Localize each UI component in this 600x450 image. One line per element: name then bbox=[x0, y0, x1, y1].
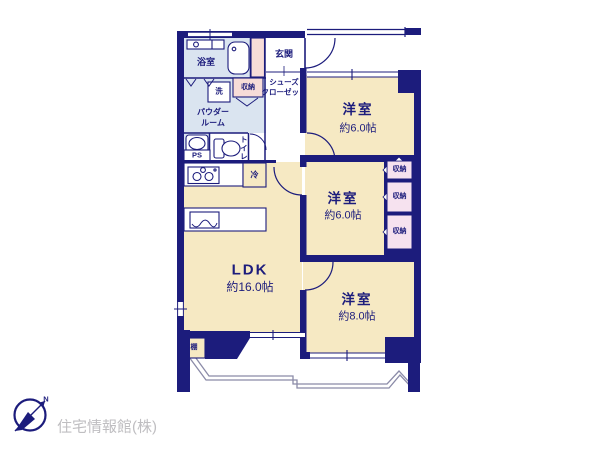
closet-2-label: 収納 bbox=[393, 193, 407, 201]
island-sink bbox=[184, 208, 266, 231]
entrance-side-cabinet bbox=[251, 38, 265, 77]
toilet-fixture bbox=[214, 139, 240, 158]
bedroom-bottom-label: 洋室 bbox=[342, 292, 373, 308]
room-bedroom-middle-fill bbox=[305, 162, 385, 255]
floorplan-drawing bbox=[0, 0, 600, 450]
bedroom-middle-size-label: 約6.0帖 bbox=[324, 210, 361, 223]
bathtub bbox=[228, 42, 249, 74]
shoe-closet-label-2: クローゼット bbox=[262, 88, 307, 97]
wash-basin bbox=[186, 135, 208, 152]
entrance-door-arc bbox=[305, 38, 335, 68]
company-name: 住宅情報館(株) bbox=[57, 418, 157, 435]
bedroom-top-label: 洋室 bbox=[343, 102, 374, 118]
ldk-size-label: 約16.0帖 bbox=[226, 281, 273, 295]
shelf-label: 棚 bbox=[191, 344, 198, 352]
corridor-railing bbox=[307, 27, 405, 37]
powder-door-arc bbox=[250, 134, 266, 150]
powder-room-label-1: パウダー bbox=[197, 107, 229, 116]
bedroom-top-size-label: 約6.0帖 bbox=[339, 123, 376, 136]
laundry-label: 洗 bbox=[215, 88, 223, 97]
floorplan-page: 浴室 玄関 シューズ クローゼット 収納 洗 パウダー ルーム PS トイレ 冷… bbox=[0, 0, 600, 450]
compass-north-label: N bbox=[43, 396, 48, 405]
refrigerator-label: 冷 bbox=[251, 170, 259, 179]
toilet-label: トイレ bbox=[239, 135, 248, 161]
powder-room-label-2: ルーム bbox=[201, 118, 225, 127]
compass-icon bbox=[15, 400, 46, 432]
bathroom-label: 浴室 bbox=[197, 57, 215, 67]
balcony-outline bbox=[189, 354, 412, 388]
shoe-closet-label-1: シューズ bbox=[269, 79, 299, 88]
bedroom-bottom-size-label: 約8.0帖 bbox=[338, 311, 375, 324]
closet-1-label: 収納 bbox=[393, 166, 407, 174]
bedroom-middle-label: 洋室 bbox=[328, 191, 359, 207]
entrance-label: 玄関 bbox=[275, 49, 293, 59]
bath-counter bbox=[187, 40, 224, 49]
closet-3-label: 収納 bbox=[393, 228, 407, 236]
ps-label: PS bbox=[192, 152, 202, 161]
room-ldk-fill bbox=[184, 162, 302, 333]
ldk-label: LDK bbox=[232, 261, 269, 278]
hall-storage-label: 収納 bbox=[241, 84, 255, 92]
kitchen-counter bbox=[184, 163, 243, 186]
